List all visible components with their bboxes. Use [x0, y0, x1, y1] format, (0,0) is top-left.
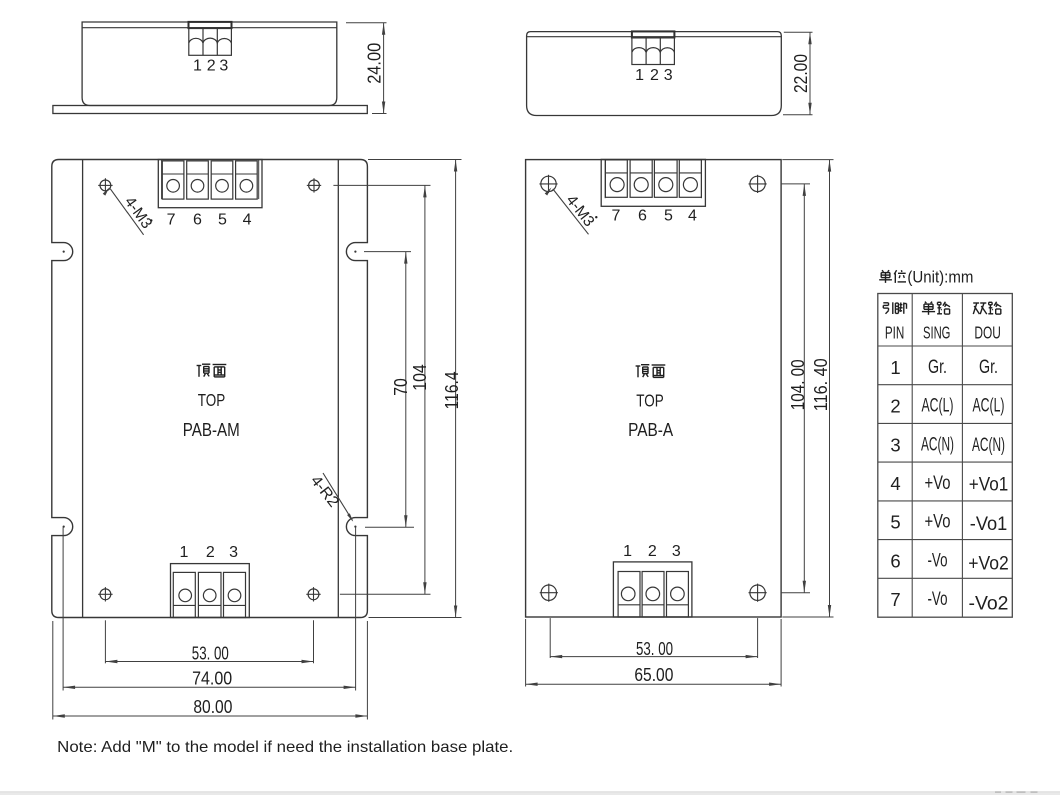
svg-text:2: 2: [890, 396, 900, 417]
svg-text:5: 5: [664, 208, 673, 225]
svg-text:-Vo1: -Vo1: [970, 514, 1008, 535]
svg-text:2: 2: [206, 544, 215, 561]
svg-text:+Vo2: +Vo2: [968, 553, 1009, 574]
svg-text:3: 3: [229, 544, 238, 561]
svg-text:4: 4: [688, 208, 697, 225]
svg-text:24.00: 24.00: [364, 43, 385, 84]
svg-text:6: 6: [193, 212, 202, 229]
svg-text:53. 00: 53. 00: [192, 642, 229, 663]
svg-text:+Vo1: +Vo1: [969, 475, 1009, 496]
svg-text:-Vo: -Vo: [928, 550, 948, 571]
svg-text:PIN: PIN: [885, 322, 905, 342]
svg-text:116. 40: 116. 40: [810, 358, 831, 411]
svg-text:3: 3: [672, 543, 681, 560]
svg-text:7: 7: [611, 208, 620, 225]
svg-text:1: 1: [179, 544, 188, 561]
svg-text:2: 2: [648, 543, 657, 560]
svg-text:AC(L): AC(L): [922, 396, 954, 417]
svg-text:2: 2: [650, 67, 659, 84]
svg-text:6: 6: [638, 208, 647, 225]
svg-text:7: 7: [167, 212, 176, 229]
svg-text:+Vo: +Vo: [925, 512, 951, 533]
svg-text:1: 1: [890, 357, 900, 378]
svg-text:TOP: TOP: [198, 390, 226, 410]
svg-text:3: 3: [890, 434, 900, 455]
svg-text:1: 1: [623, 543, 632, 560]
svg-text:AC(N): AC(N): [921, 434, 954, 455]
svg-text:PAB-AM: PAB-AM: [183, 419, 240, 440]
svg-text:AC(L): AC(L): [973, 396, 1005, 417]
svg-text:65.00: 65.00: [634, 664, 673, 685]
svg-text:3: 3: [219, 58, 228, 75]
svg-text:5: 5: [890, 512, 900, 533]
svg-text:SING: SING: [923, 322, 951, 342]
svg-text:DOU: DOU: [974, 322, 1001, 342]
svg-text:-Vo2: -Vo2: [969, 594, 1009, 615]
svg-text:7: 7: [890, 589, 900, 610]
svg-text:-Vo: -Vo: [928, 589, 948, 610]
svg-text:70: 70: [390, 378, 411, 396]
svg-text:4: 4: [890, 473, 900, 494]
svg-text:AC(N): AC(N): [972, 435, 1005, 456]
svg-text:74.00: 74.00: [192, 667, 232, 688]
svg-text:2: 2: [207, 58, 216, 75]
svg-text:104: 104: [409, 364, 430, 391]
svg-text:(Unit):mm: (Unit):mm: [907, 268, 973, 287]
svg-text:5: 5: [218, 212, 227, 229]
svg-text:TOP: TOP: [636, 390, 664, 410]
svg-text:22.00: 22.00: [790, 54, 811, 93]
svg-text:80.00: 80.00: [193, 696, 232, 717]
svg-text:53. 00: 53. 00: [636, 638, 673, 659]
svg-text:+Vo: +Vo: [925, 473, 951, 494]
svg-text:Gr.: Gr.: [979, 357, 998, 378]
svg-text:PAB-A: PAB-A: [628, 419, 674, 440]
svg-text:116.4: 116.4: [441, 371, 462, 409]
svg-text:104. 00: 104. 00: [787, 359, 808, 410]
svg-text:Note: Add "M" to the model if: Note: Add "M" to the model if need the i…: [57, 739, 513, 756]
svg-text:6: 6: [890, 550, 900, 571]
svg-text:Gr.: Gr.: [928, 357, 947, 378]
svg-text:4: 4: [243, 212, 252, 229]
svg-text:3: 3: [664, 67, 673, 84]
svg-text:1: 1: [193, 58, 202, 75]
svg-text:1: 1: [635, 67, 644, 84]
